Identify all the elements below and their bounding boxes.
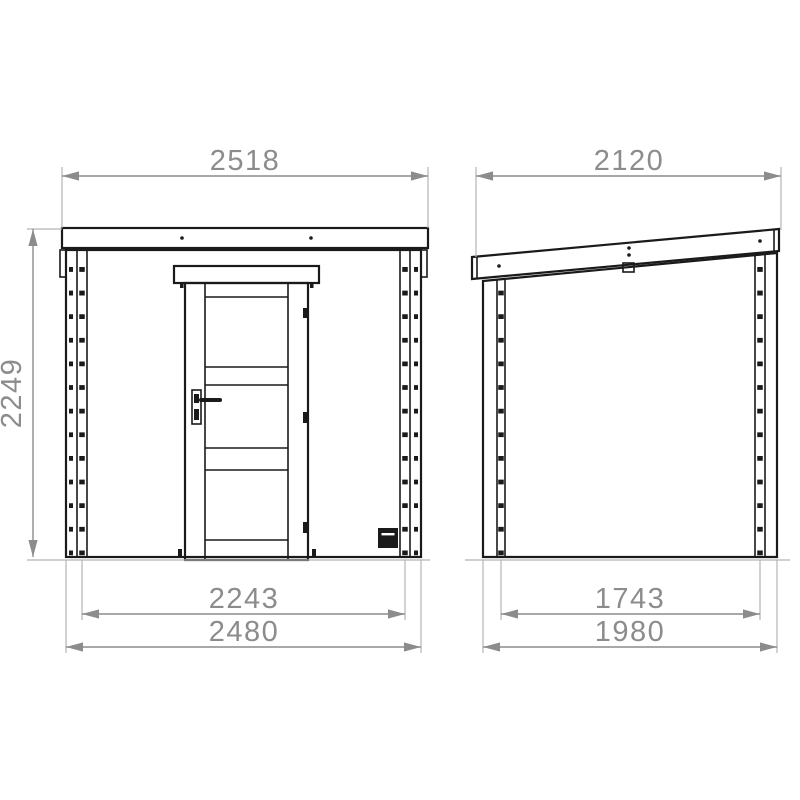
header-fixing-mark: [180, 283, 184, 288]
frame-base-mark: [178, 549, 182, 556]
door-handle-icon: [192, 390, 220, 424]
frame-base-mark: [312, 549, 316, 556]
side-wall-panel: [483, 253, 777, 557]
front-left-batten: [71, 250, 87, 557]
side-right-batten: [755, 254, 765, 557]
arrowhead-left: [82, 609, 99, 618]
arrowhead-right: [743, 609, 760, 618]
arrowhead-left: [501, 609, 518, 618]
dim-label-side-roof-width: 2120: [594, 145, 665, 177]
front-roof-fascia: [62, 228, 428, 248]
door-frame: [185, 283, 308, 560]
arrowhead-right: [411, 171, 428, 180]
arrowhead-left: [476, 171, 493, 180]
dim-label-front-height: 2249: [0, 358, 28, 429]
dim-label-side-base-width: 1980: [595, 616, 666, 648]
dim-label-front-roof-width: 2518: [210, 145, 281, 177]
arrowhead-down: [28, 540, 37, 557]
roof-screw-dot: [497, 264, 501, 268]
door-leaf: [205, 297, 288, 540]
arrowhead-right: [764, 171, 781, 180]
roof-screw-dot: [627, 253, 631, 257]
roof-screw-dot: [627, 246, 631, 250]
arrowhead-right: [388, 609, 405, 618]
front-wall-panel: [66, 250, 421, 557]
hinge-icon: [303, 522, 308, 533]
front-right-batten: [400, 250, 416, 557]
technical-drawing: 2518 2120 2249 2243 2480: [0, 0, 800, 800]
arrowhead-up: [28, 229, 37, 246]
front-door: [174, 266, 319, 560]
side-view: [472, 229, 779, 557]
dim-front-inner-width: 2243: [82, 560, 405, 620]
hinge-icon: [303, 412, 308, 423]
dim-label-front-inner-width: 2243: [209, 583, 280, 615]
dim-front-roof-width: 2518: [62, 145, 428, 228]
side-roof: [472, 229, 779, 279]
roof-screw-dot: [309, 236, 313, 240]
roof-screw-dot: [180, 236, 184, 240]
door-header-board: [174, 266, 319, 283]
front-view: [60, 228, 428, 560]
header-fixing-mark: [310, 283, 314, 288]
arrowhead-left: [483, 642, 500, 651]
arrowhead-left: [66, 642, 83, 651]
roof-screw-dot: [758, 239, 762, 243]
front-wall: [60, 228, 428, 557]
arrowhead-left: [62, 171, 79, 180]
dim-side-roof-width: 2120: [476, 145, 781, 257]
dim-front-height: 2249: [0, 229, 430, 560]
side-left-batten: [497, 279, 505, 557]
vent-icon: [378, 528, 398, 548]
arrowhead-right: [760, 642, 777, 651]
shed-dimension-diagram: 2518 2120 2249 2243 2480: [0, 0, 800, 800]
dim-label-front-base-width: 2480: [209, 616, 280, 648]
arrowhead-right: [404, 642, 421, 651]
dim-label-side-inner-width: 1743: [595, 583, 666, 615]
dim-side-inner-width: 1743: [465, 560, 790, 620]
hinge-icon: [303, 308, 308, 318]
